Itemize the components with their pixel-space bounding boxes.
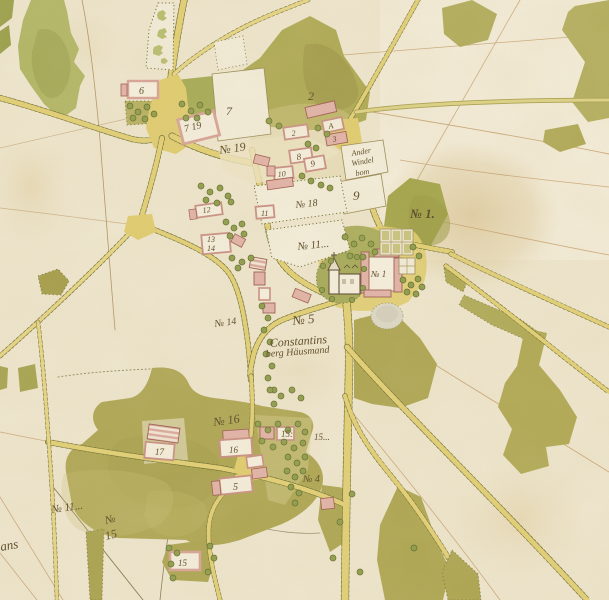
- svg-text:7: 7: [226, 104, 233, 118]
- svg-text:10: 10: [277, 169, 286, 179]
- svg-text:17: 17: [155, 447, 165, 457]
- svg-text:ans: ans: [0, 536, 19, 554]
- svg-text:13: 13: [207, 235, 215, 244]
- svg-text:9: 9: [353, 188, 360, 203]
- svg-text:11: 11: [261, 209, 268, 218]
- svg-text:№ 1.: № 1.: [409, 206, 435, 221]
- svg-text:16: 16: [229, 445, 239, 455]
- svg-text:2: 2: [308, 89, 314, 103]
- svg-text:№ 5: № 5: [291, 311, 316, 328]
- svg-text:№ 1: № 1: [370, 269, 386, 279]
- svg-text:15: 15: [178, 558, 188, 568]
- svg-text:12: 12: [202, 205, 211, 215]
- svg-text:5: 5: [233, 482, 238, 493]
- svg-text:15...: 15...: [314, 432, 330, 442]
- svg-text:15:: 15:: [281, 429, 293, 439]
- svg-text:№ 4: № 4: [302, 474, 320, 485]
- svg-text:14: 14: [207, 244, 215, 253]
- svg-text:6: 6: [139, 86, 144, 97]
